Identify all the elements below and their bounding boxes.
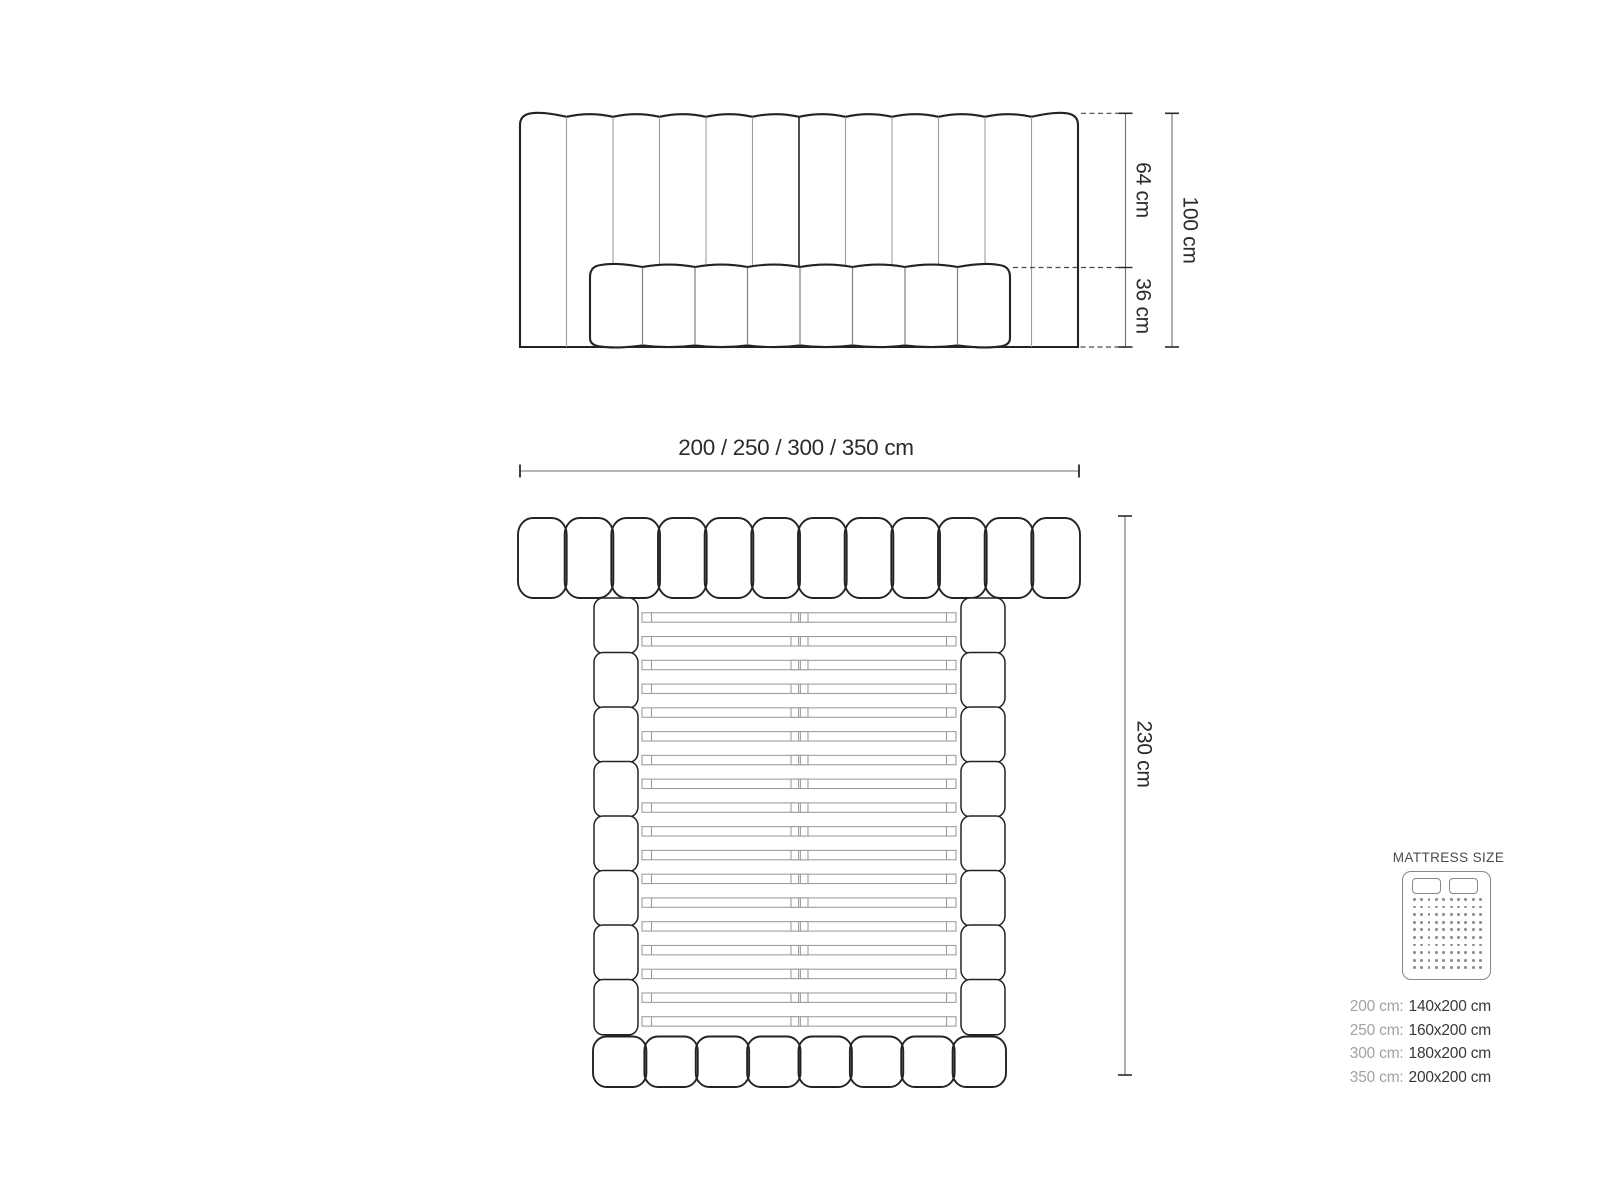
mattress-dot <box>1420 936 1423 939</box>
mattress-dot <box>1420 898 1423 901</box>
slat-center-connector <box>800 898 808 907</box>
mattress-quilt-dots <box>1413 898 1483 976</box>
slat-center-connector <box>800 827 808 836</box>
headboard-pill <box>891 518 940 598</box>
dim-label-36cm: 36 cm <box>1132 278 1155 334</box>
right-rail-segment <box>961 707 1005 762</box>
mattress-dot <box>1428 951 1431 954</box>
mattress-dot <box>1472 913 1475 916</box>
mattress-dot <box>1435 936 1438 939</box>
mattress-size-title: MATTRESS SIZE <box>1376 850 1521 865</box>
mattress-dot <box>1442 936 1445 939</box>
mattress-dot <box>1464 921 1467 924</box>
mattress-dot <box>1442 913 1445 916</box>
right-rail-segment <box>961 925 1005 980</box>
mattress-dot <box>1450 944 1453 947</box>
slat-center-connector <box>791 993 799 1002</box>
mattress-dot <box>1413 951 1416 954</box>
mattress-dot <box>1442 906 1445 909</box>
mattress-dot <box>1420 944 1423 947</box>
mattress-dot <box>1435 959 1438 962</box>
footboard-cushion <box>593 1037 646 1088</box>
left-rail-segment <box>594 707 638 762</box>
mattress-dot <box>1420 951 1423 954</box>
mattress-dot <box>1472 936 1475 939</box>
mattress-dot <box>1420 913 1423 916</box>
mattress-dot <box>1413 921 1416 924</box>
slat-center-connector <box>800 945 808 954</box>
slat-center-connector <box>791 637 799 646</box>
mattress-dimensions-value: 180x200 cm <box>1409 1045 1491 1062</box>
slat-center-connector <box>800 684 808 693</box>
size-option-label: 300 cm: <box>1350 1045 1404 1062</box>
mattress-dot <box>1472 959 1475 962</box>
headboard-pill <box>751 518 800 598</box>
slat-center-connector <box>800 922 808 931</box>
mattress-dot <box>1428 959 1431 962</box>
slat-center-connector <box>800 708 808 717</box>
slat-center-connector <box>800 637 808 646</box>
pillow-icon <box>1449 878 1478 894</box>
slat-center-connector <box>791 922 799 931</box>
dim-label-widths: 200 / 250 / 300 / 350 cm <box>678 435 913 460</box>
slat-center-connector <box>791 732 799 741</box>
slat-center-connector <box>791 898 799 907</box>
headboard-pill <box>845 518 894 598</box>
slat-center-connector <box>791 708 799 717</box>
left-rail-segment <box>594 871 638 926</box>
mattress-dot <box>1450 959 1453 962</box>
mattress-dot <box>1479 966 1482 969</box>
mattress-dot <box>1413 913 1416 916</box>
mattress-dot <box>1420 959 1423 962</box>
headboard-pill <box>611 518 660 598</box>
mattress-dot <box>1450 913 1453 916</box>
mattress-dot <box>1472 921 1475 924</box>
mattress-dot <box>1413 906 1416 909</box>
width-dimension-line <box>520 465 1079 478</box>
mattress-dot <box>1413 944 1416 947</box>
mattress-dot <box>1472 944 1475 947</box>
slat-center-connector <box>800 732 808 741</box>
headboard-pill <box>658 518 707 598</box>
slat-center-connector <box>791 803 799 812</box>
mattress-dot <box>1479 921 1482 924</box>
right-rail-segment <box>961 762 1005 817</box>
mattress-dot <box>1472 906 1475 909</box>
mattress-dot <box>1442 944 1445 947</box>
footboard-cushion <box>850 1037 903 1088</box>
mattress-size-row: 300 cm:180x200 cm <box>1310 1042 1491 1066</box>
mattress-dot <box>1464 898 1467 901</box>
right-rail-segment <box>961 871 1005 926</box>
slat-center-connector <box>791 684 799 693</box>
top-view-drawing <box>518 518 1080 1087</box>
slat-center-connector <box>791 1017 799 1026</box>
slat-center-connector <box>791 827 799 836</box>
mattress-dot <box>1435 944 1438 947</box>
mattress-dot <box>1479 944 1482 947</box>
mattress-size-list: 200 cm:140x200 cm250 cm:160x200 cm300 cm… <box>1310 995 1491 1090</box>
mattress-dot <box>1420 921 1423 924</box>
headboard-pill <box>565 518 614 598</box>
mattress-dot <box>1413 898 1416 901</box>
slat-center-connector <box>800 755 808 764</box>
mattress-dot <box>1435 966 1438 969</box>
mattress-dot <box>1450 951 1453 954</box>
slat-center-connector <box>800 850 808 859</box>
mattress-dot <box>1457 959 1460 962</box>
slat-center-connector <box>791 779 799 788</box>
mattress-dot <box>1479 906 1482 909</box>
headboard-pill <box>985 518 1034 598</box>
dim-label-64cm: 64 cm <box>1132 162 1155 218</box>
mattress-dot <box>1457 936 1460 939</box>
mattress-dot <box>1464 966 1467 969</box>
mattress-dot <box>1450 928 1453 931</box>
mattress-dot <box>1472 966 1475 969</box>
mattress-dot <box>1464 913 1467 916</box>
headboard-pill <box>938 518 987 598</box>
mattress-dot <box>1435 898 1438 901</box>
slat-center-connector <box>791 874 799 883</box>
footboard-cushion <box>747 1037 800 1088</box>
mattress-dimensions-value: 140x200 cm <box>1409 998 1491 1015</box>
mattress-dot <box>1435 951 1438 954</box>
mattress-dot <box>1472 951 1475 954</box>
size-option-label: 250 cm: <box>1350 1022 1404 1039</box>
mattress-dot <box>1420 906 1423 909</box>
slat-center-connector <box>800 1017 808 1026</box>
mattress-dot <box>1479 928 1482 931</box>
pillow-icon <box>1412 878 1441 894</box>
mattress-dot <box>1464 928 1467 931</box>
mattress-dot <box>1442 951 1445 954</box>
slat-center-connector <box>791 945 799 954</box>
mattress-dimensions-value: 200x200 cm <box>1409 1069 1491 1086</box>
slat-center-connector <box>800 660 808 669</box>
mattress-dot <box>1442 959 1445 962</box>
size-option-label: 200 cm: <box>1350 998 1404 1015</box>
mattress-dot <box>1450 906 1453 909</box>
slat-center-connector <box>800 993 808 1002</box>
mattress-dot <box>1450 898 1453 901</box>
mattress-dot <box>1457 966 1460 969</box>
double-mattress-icon <box>1402 871 1491 980</box>
slat-center-connector <box>791 660 799 669</box>
mattress-size-row: 250 cm:160x200 cm <box>1310 1019 1491 1043</box>
mattress-dot <box>1457 898 1460 901</box>
mattress-dot <box>1435 928 1438 931</box>
mattress-size-row: 350 cm:200x200 cm <box>1310 1066 1491 1090</box>
mattress-dot <box>1420 928 1423 931</box>
mattress-dot <box>1457 928 1460 931</box>
mattress-dot <box>1428 936 1431 939</box>
mattress-dot <box>1442 898 1445 901</box>
mattress-dot <box>1435 921 1438 924</box>
right-rail-segment <box>961 816 1005 871</box>
mattress-dot <box>1413 936 1416 939</box>
slat-center-connector <box>791 969 799 978</box>
mattress-dot <box>1479 951 1482 954</box>
footboard-cushion <box>901 1037 954 1088</box>
mattress-dot <box>1479 898 1482 901</box>
mattress-dot <box>1420 966 1423 969</box>
mattress-dot <box>1428 944 1431 947</box>
mattress-dot <box>1442 928 1445 931</box>
mattress-dot <box>1428 921 1431 924</box>
mattress-dot <box>1413 928 1416 931</box>
left-rail-segment <box>594 816 638 871</box>
mattress-dot <box>1479 959 1482 962</box>
mattress-size-row: 200 cm:140x200 cm <box>1310 995 1491 1019</box>
mattress-dot <box>1457 951 1460 954</box>
slat-center-connector <box>791 850 799 859</box>
slat-center-connector <box>800 803 808 812</box>
slat-center-connector <box>800 779 808 788</box>
mattress-dot <box>1428 906 1431 909</box>
mattress-dot <box>1464 906 1467 909</box>
footboard-cushion <box>644 1037 697 1088</box>
headboard-pill <box>518 518 567 598</box>
headboard-pill <box>798 518 847 598</box>
left-rail-segment <box>594 980 638 1035</box>
right-rail-segment <box>961 653 1005 708</box>
mattress-dot <box>1428 913 1431 916</box>
dim-label-230cm: 230 cm <box>1133 720 1156 787</box>
mattress-dot <box>1464 944 1467 947</box>
mattress-dot <box>1457 944 1460 947</box>
mattress-dot <box>1413 966 1416 969</box>
footboard-cushion <box>696 1037 749 1088</box>
size-option-label: 350 cm: <box>1350 1069 1404 1086</box>
left-rail-segment <box>594 762 638 817</box>
mattress-dot <box>1435 906 1438 909</box>
mattress-dot <box>1428 898 1431 901</box>
mattress-dimensions-value: 160x200 cm <box>1409 1022 1491 1039</box>
mattress-dot <box>1457 921 1460 924</box>
bed-dimension-sheet: { "front_view": { "dim_upper_label": "64… <box>0 0 1600 1200</box>
mattress-dot <box>1428 966 1431 969</box>
mattress-dot <box>1479 913 1482 916</box>
mattress-dot <box>1457 913 1460 916</box>
headboard-pill <box>705 518 754 598</box>
mattress-dot <box>1479 936 1482 939</box>
mattress-dot <box>1450 966 1453 969</box>
slat-center-connector <box>800 969 808 978</box>
headboard-pill <box>1031 518 1080 598</box>
slat-center-connector <box>791 755 799 764</box>
right-rail-segment <box>961 980 1005 1035</box>
mattress-dot <box>1450 936 1453 939</box>
footboard-cushion <box>953 1037 1006 1088</box>
mattress-dot <box>1428 928 1431 931</box>
mattress-dot <box>1472 928 1475 931</box>
right-rail-segment <box>961 598 1005 653</box>
dim-label-100cm: 100 cm <box>1179 196 1202 263</box>
mattress-dot <box>1442 966 1445 969</box>
mattress-dot <box>1464 951 1467 954</box>
left-rail-segment <box>594 598 638 653</box>
slat-center-connector <box>800 874 808 883</box>
mattress-dot <box>1450 921 1453 924</box>
footboard-cushion <box>799 1037 852 1088</box>
left-rail-segment <box>594 653 638 708</box>
mattress-dot <box>1413 959 1416 962</box>
mattress-dot <box>1464 959 1467 962</box>
front-view-drawing <box>520 113 1078 348</box>
mattress-dot <box>1435 913 1438 916</box>
mattress-dot <box>1464 936 1467 939</box>
slat-center-connector <box>791 613 799 622</box>
left-rail-segment <box>594 925 638 980</box>
slat-center-connector <box>800 613 808 622</box>
length-dimension-line <box>1118 516 1132 1075</box>
mattress-dot <box>1472 898 1475 901</box>
mattress-dot <box>1442 921 1445 924</box>
mattress-dot <box>1457 906 1460 909</box>
